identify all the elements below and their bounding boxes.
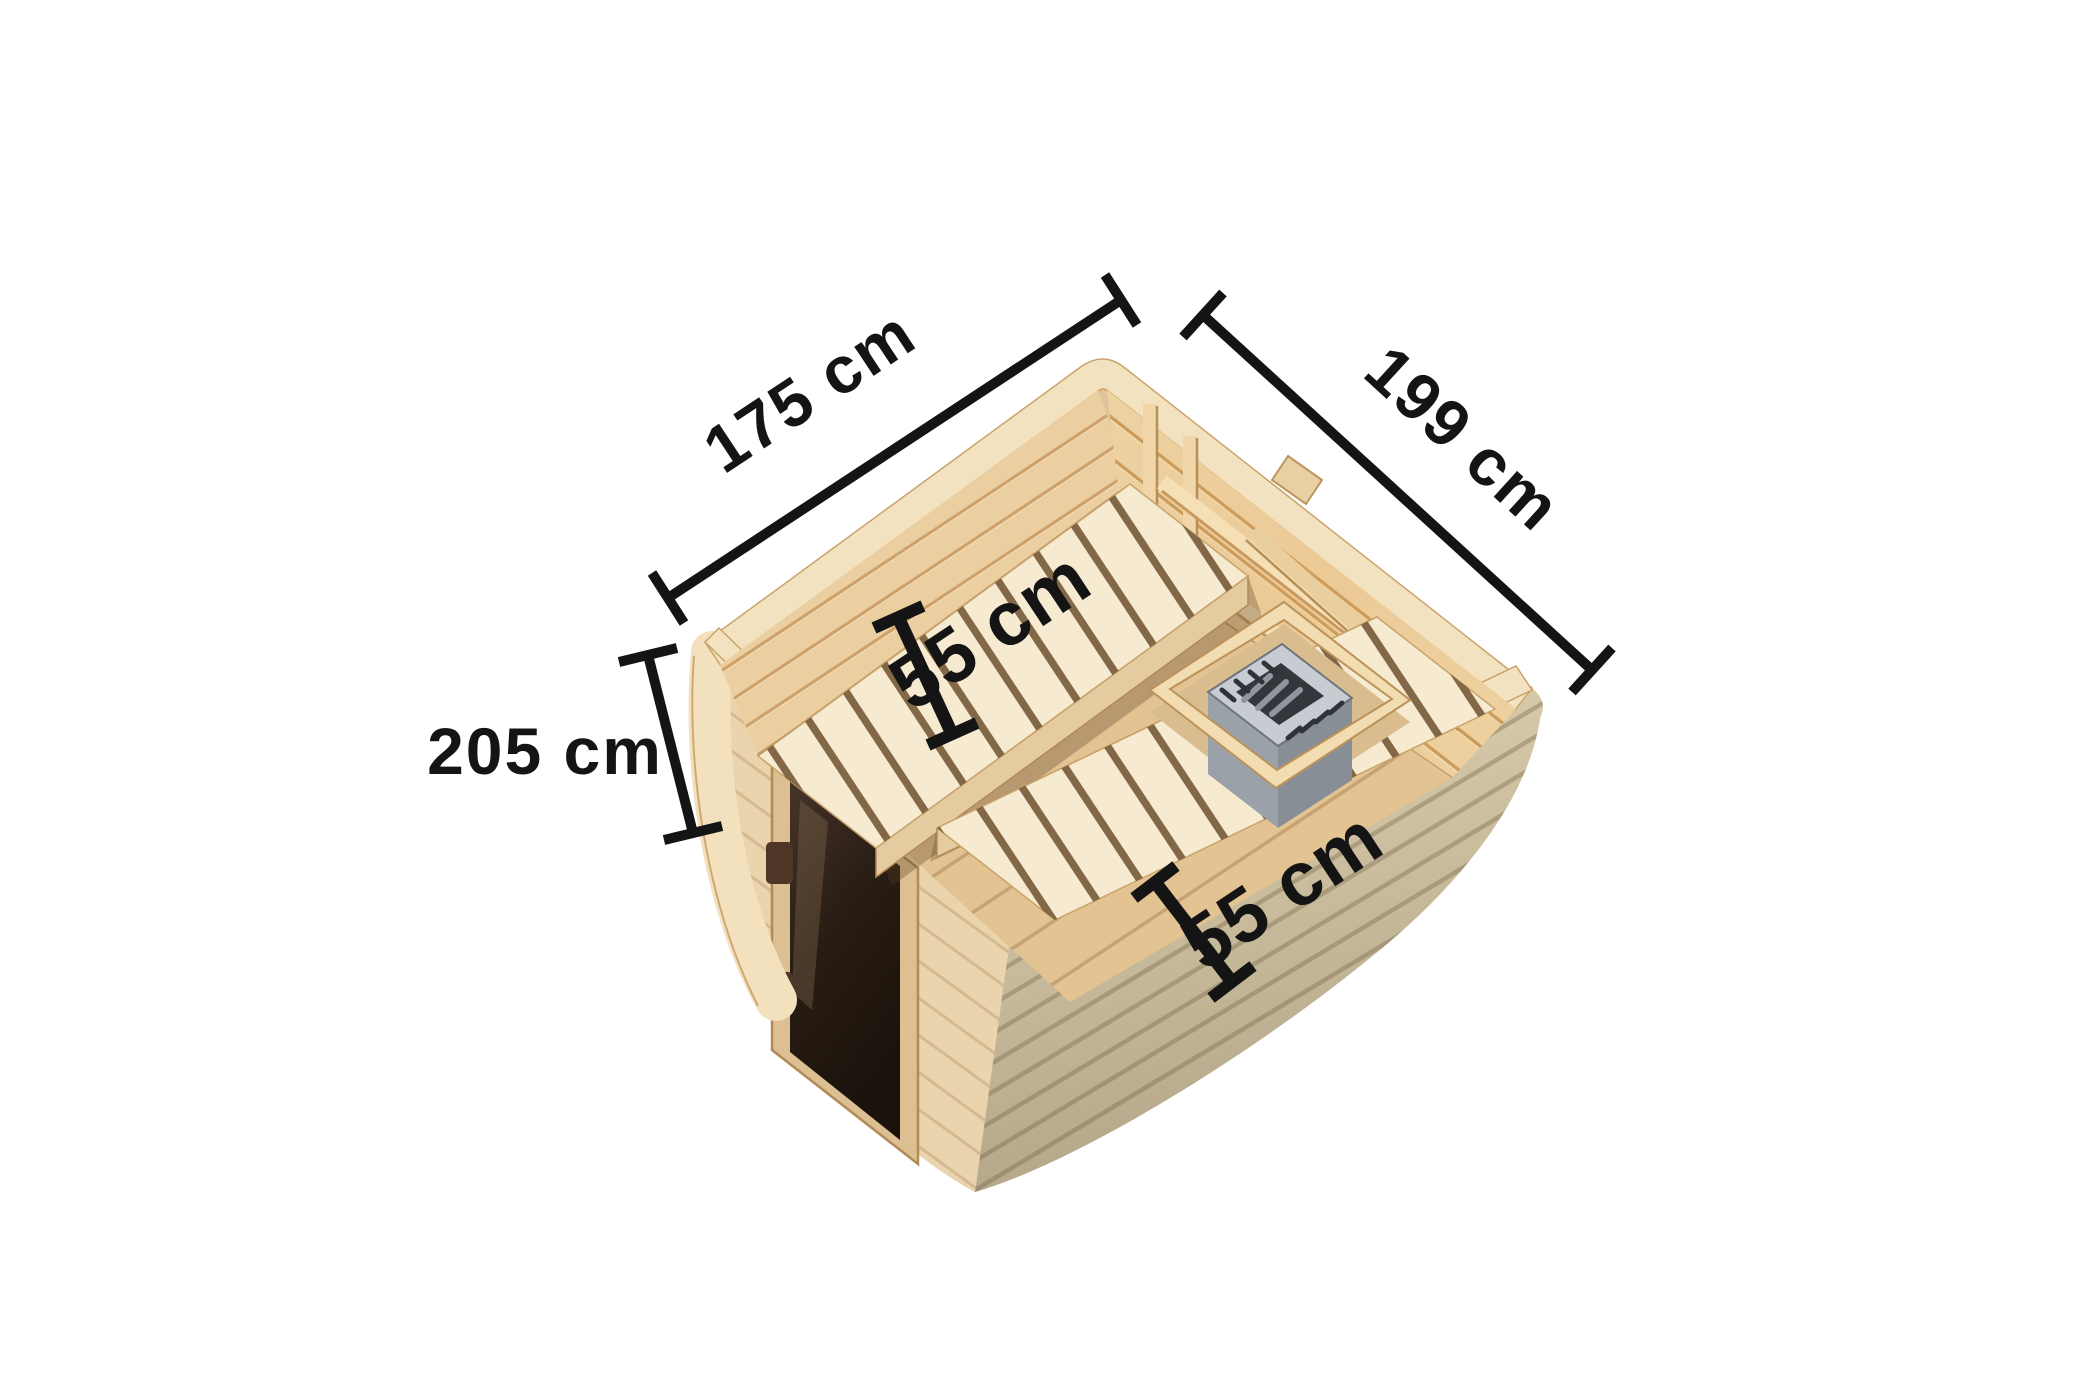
sauna-body (692, 359, 1543, 1192)
product-dimension-diagram: 175 cm 199 cm 205 cm 55 cm 5 (0, 0, 2100, 1400)
dimension-label-175: 175 cm (691, 295, 929, 487)
dimension-tick (652, 573, 684, 623)
dimension-tick (619, 648, 677, 662)
dimension-label-205: 205 cm (427, 714, 663, 788)
dimension-label-199: 199 cm (1351, 331, 1575, 545)
dimension-tick (1105, 275, 1137, 325)
sauna-dimension-illustration: 175 cm 199 cm 205 cm 55 cm 5 (0, 0, 2100, 1400)
door-hinge-top (766, 842, 793, 884)
dimension-205: 205 cm (427, 648, 722, 840)
